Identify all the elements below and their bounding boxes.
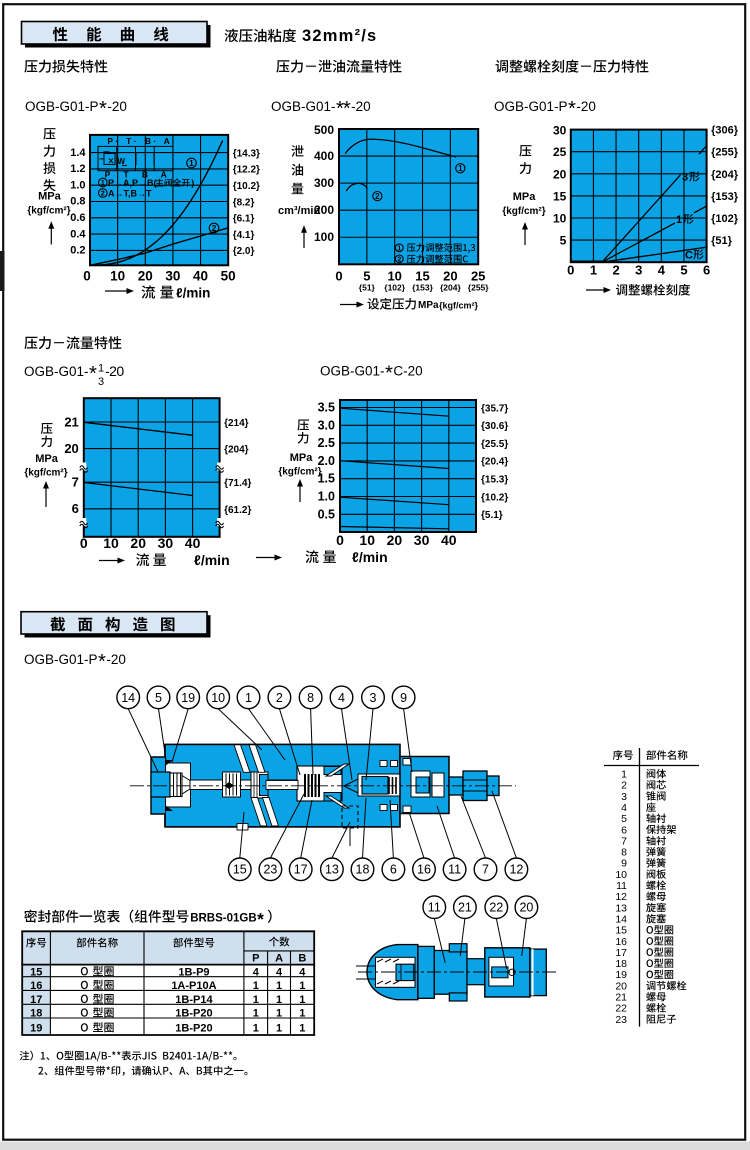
svg-text:MPa: MPa [418, 300, 439, 311]
svg-text:0: 0 [80, 535, 88, 551]
svg-text:{10.2}: {10.2} [481, 492, 508, 503]
svg-text:1: 1 [245, 691, 252, 705]
svg-text:OGB-G01-P: OGB-G01-P [25, 99, 99, 114]
svg-text:{255}: {255} [711, 147, 739, 159]
svg-text:15: 15 [233, 863, 247, 877]
svg-text:32mm²/s: 32mm²/s [302, 27, 377, 45]
svg-text:{2.0}: {2.0} [233, 246, 255, 257]
svg-text:1: 1 [101, 178, 105, 187]
svg-text:A→T,B→T: A→T,B→T [108, 189, 152, 199]
svg-text:18: 18 [30, 1008, 42, 1020]
svg-text:1.4: 1.4 [70, 147, 86, 159]
svg-text:6: 6 [703, 263, 710, 278]
svg-text:{12.2}: {12.2} [233, 165, 260, 176]
svg-text:100: 100 [314, 230, 334, 244]
svg-text:{255}: {255} [468, 283, 489, 293]
svg-text:C-20: C-20 [393, 364, 422, 379]
svg-text:A ·: A · [164, 136, 175, 146]
svg-text:{102}: {102} [711, 213, 739, 225]
svg-text:0: 0 [567, 263, 574, 278]
svg-text:20: 20 [387, 532, 403, 548]
svg-text:{6.1}: {6.1} [233, 214, 255, 225]
svg-text:1: 1 [253, 994, 259, 1006]
svg-text:MPa: MPa [513, 191, 537, 203]
svg-text:0.8: 0.8 [70, 196, 85, 208]
svg-text:6: 6 [390, 863, 397, 877]
svg-text:{kgf/cm²}: {kgf/cm²} [439, 301, 479, 311]
svg-text:21: 21 [458, 901, 472, 915]
svg-text:23: 23 [615, 1014, 627, 1026]
svg-text:{35.7}: {35.7} [481, 403, 508, 414]
svg-text:*: * [257, 909, 264, 929]
svg-text:20: 20 [519, 901, 533, 915]
svg-text:10: 10 [359, 532, 375, 548]
svg-text:1: 1 [276, 1023, 282, 1035]
svg-text:13: 13 [325, 863, 339, 877]
svg-text:30: 30 [158, 535, 174, 551]
svg-text:10: 10 [110, 269, 125, 284]
svg-text:1: 1 [276, 994, 282, 1006]
svg-text:1: 1 [299, 1008, 305, 1020]
svg-text:1: 1 [299, 1023, 305, 1035]
svg-text:{30.6}: {30.6} [481, 421, 508, 432]
svg-text:1B-P9: 1B-P9 [178, 966, 209, 978]
svg-text:10: 10 [103, 535, 119, 551]
svg-text:OGB-G01-P: OGB-G01-P [24, 652, 98, 667]
svg-text:1: 1 [276, 980, 282, 992]
svg-text:30: 30 [414, 532, 430, 548]
svg-text:cm³/min: cm³/min [278, 205, 320, 217]
svg-text:*: * [568, 98, 576, 120]
svg-text:{102}: {102} [384, 283, 405, 293]
svg-text:1: 1 [253, 1008, 259, 1020]
svg-text:0: 0 [83, 269, 91, 284]
svg-text:6: 6 [72, 501, 79, 516]
svg-text:23: 23 [263, 863, 277, 877]
svg-text:1: 1 [676, 214, 682, 226]
svg-text:OGB-G01-: OGB-G01- [24, 364, 89, 379]
svg-text:1: 1 [299, 994, 305, 1006]
svg-text:MPa: MPa [290, 452, 314, 464]
svg-text:4: 4 [299, 966, 306, 978]
svg-text:30: 30 [165, 269, 180, 284]
svg-text:C: C [685, 250, 693, 262]
svg-text:10: 10 [211, 691, 225, 705]
svg-text:BRBS-01GB: BRBS-01GB [190, 913, 256, 925]
svg-text:7: 7 [482, 863, 489, 877]
svg-text:25: 25 [553, 145, 567, 159]
svg-text:-20: -20 [576, 99, 596, 114]
svg-text:20: 20 [138, 269, 153, 284]
svg-text:3: 3 [682, 172, 688, 184]
svg-text:1B-P14: 1B-P14 [175, 994, 213, 1006]
svg-text:**: ** [336, 98, 351, 120]
svg-text:P ·: P · [107, 136, 118, 146]
svg-text:15: 15 [415, 269, 429, 284]
svg-text:MPa: MPa [35, 453, 59, 465]
svg-text:16: 16 [30, 980, 42, 992]
svg-text:MPa: MPa [38, 191, 62, 203]
svg-text:1: 1 [189, 158, 194, 168]
svg-text:16: 16 [417, 863, 431, 877]
svg-text:1A-P10A: 1A-P10A [171, 980, 216, 992]
svg-text:4: 4 [276, 966, 283, 978]
svg-text:40: 40 [193, 269, 208, 284]
svg-text:{5.1}: {5.1} [481, 510, 503, 521]
svg-text:1: 1 [98, 363, 104, 375]
svg-text:{306}: {306} [711, 125, 739, 137]
svg-text:{kgf/cm²}: {kgf/cm²} [502, 206, 545, 217]
svg-text:{25.5}: {25.5} [481, 439, 508, 450]
svg-text:OGB-G01-: OGB-G01- [271, 99, 336, 114]
svg-text:0.4: 0.4 [70, 228, 86, 240]
svg-text:20: 20 [553, 167, 567, 181]
svg-text:4: 4 [253, 966, 260, 978]
svg-text:{61.2}: {61.2} [224, 505, 251, 516]
svg-text:B: B [298, 953, 306, 965]
svg-text:-20: -20 [105, 363, 124, 379]
svg-text:15: 15 [30, 966, 42, 978]
svg-text:ℓ/min: ℓ/min [352, 549, 388, 565]
svg-text:ℓ/min: ℓ/min [194, 552, 230, 568]
svg-text:14: 14 [121, 691, 135, 705]
svg-text:8: 8 [307, 691, 314, 705]
svg-text:17: 17 [294, 863, 308, 877]
svg-text:{153}: {153} [711, 191, 739, 203]
svg-text:{15.3}: {15.3} [481, 475, 508, 486]
svg-text:{153}: {153} [412, 283, 433, 293]
svg-text:1: 1 [253, 980, 259, 992]
svg-text:P: P [252, 953, 259, 965]
svg-text:1.0: 1.0 [70, 179, 85, 191]
svg-text:1: 1 [458, 164, 463, 173]
svg-text:1: 1 [397, 245, 401, 252]
svg-text:{20.4}: {20.4} [481, 457, 508, 468]
svg-text:3.5: 3.5 [318, 401, 335, 415]
svg-text:2.5: 2.5 [318, 436, 335, 450]
svg-text:{51}: {51} [359, 283, 376, 293]
svg-text:18: 18 [356, 863, 370, 877]
svg-text:0: 0 [335, 269, 342, 284]
svg-text:{kgf/cm²}: {kgf/cm²} [278, 467, 321, 478]
svg-text:22: 22 [489, 901, 503, 915]
svg-text:3.0: 3.0 [318, 418, 335, 432]
svg-text:50: 50 [221, 269, 236, 284]
svg-text:3: 3 [635, 263, 642, 278]
svg-text:10: 10 [387, 269, 401, 284]
svg-text:1B-P20: 1B-P20 [175, 1023, 212, 1035]
svg-text:{204}: {204} [224, 445, 249, 456]
svg-text:9: 9 [400, 691, 407, 705]
svg-text:1: 1 [253, 1023, 259, 1035]
svg-text:{14.3}: {14.3} [233, 148, 260, 159]
svg-text:{kgf/cm²}: {kgf/cm²} [27, 206, 70, 217]
svg-text:2: 2 [101, 189, 105, 198]
svg-text:20: 20 [64, 441, 78, 456]
svg-text:21: 21 [64, 414, 78, 429]
svg-text:ℓ/min: ℓ/min [176, 286, 210, 301]
svg-text:500: 500 [314, 123, 334, 137]
svg-text:P→A,P→B(: P→A,P→B( [108, 178, 157, 188]
svg-text:12: 12 [509, 863, 523, 877]
svg-text:20: 20 [443, 269, 457, 284]
svg-text:*: * [385, 363, 393, 385]
svg-text:40: 40 [185, 535, 201, 551]
svg-text:*: * [89, 363, 97, 385]
svg-text:300: 300 [314, 176, 334, 190]
svg-text:*: * [99, 98, 107, 120]
svg-text:3: 3 [98, 376, 104, 388]
svg-text:0.6: 0.6 [70, 212, 85, 224]
svg-text:11: 11 [448, 863, 461, 877]
svg-text:{204}: {204} [711, 169, 739, 181]
svg-text:OGB-G01-: OGB-G01- [320, 364, 385, 379]
svg-text:1B-P20: 1B-P20 [175, 1008, 212, 1020]
svg-text:B ·: B · [145, 136, 156, 146]
svg-text:15: 15 [553, 189, 567, 203]
svg-text:0.5: 0.5 [318, 507, 335, 521]
svg-text:1.0: 1.0 [318, 490, 335, 504]
svg-text:OGB-G01-P: OGB-G01-P [494, 99, 568, 114]
svg-text:4: 4 [338, 691, 345, 705]
svg-text:A: A [275, 953, 283, 965]
svg-text:5: 5 [680, 263, 687, 278]
svg-text:{10.2}: {10.2} [233, 181, 260, 192]
svg-text:{204}: {204} [440, 283, 461, 293]
svg-text:{214}: {214} [224, 418, 249, 429]
svg-text:30: 30 [553, 124, 567, 138]
svg-text:5: 5 [560, 234, 567, 248]
svg-text:{4.1}: {4.1} [233, 230, 255, 241]
svg-text:19: 19 [181, 691, 195, 705]
svg-text:{51}: {51} [711, 235, 733, 247]
svg-text:0.2: 0.2 [70, 245, 85, 257]
svg-text:2: 2 [397, 256, 401, 263]
svg-text:400: 400 [314, 149, 334, 163]
svg-text:19: 19 [30, 1023, 42, 1035]
svg-text:2: 2 [276, 691, 283, 705]
svg-text:17: 17 [30, 994, 42, 1006]
svg-text:4: 4 [658, 263, 666, 278]
svg-text:10: 10 [553, 212, 567, 226]
svg-text:1: 1 [276, 1008, 282, 1020]
svg-text:20: 20 [130, 535, 146, 551]
svg-text:1: 1 [590, 263, 597, 278]
svg-text:-20: -20 [106, 652, 126, 667]
svg-text:11: 11 [428, 901, 441, 915]
svg-text:1: 1 [299, 980, 305, 992]
svg-text:): ) [191, 178, 194, 188]
svg-text:2: 2 [612, 263, 619, 278]
svg-text:3: 3 [370, 691, 377, 705]
svg-text:{kgf/cm²}: {kgf/cm²} [24, 468, 67, 479]
svg-text:40: 40 [441, 532, 457, 548]
svg-text:*: * [98, 651, 106, 673]
svg-text:2: 2 [375, 192, 380, 201]
svg-text:0: 0 [336, 532, 344, 548]
svg-text:W: W [118, 157, 126, 166]
svg-text:25: 25 [471, 269, 485, 284]
svg-text:-20: -20 [351, 99, 371, 114]
svg-text:1.2: 1.2 [70, 163, 85, 175]
svg-text:{8.2}: {8.2} [233, 197, 255, 208]
svg-text:5: 5 [155, 691, 162, 705]
svg-text:-20: -20 [107, 99, 127, 114]
svg-text:7: 7 [72, 475, 79, 490]
svg-text:5: 5 [363, 269, 370, 284]
svg-text:{71.4}: {71.4} [224, 478, 251, 489]
svg-text:A: A [161, 170, 167, 180]
svg-text:T ·: T · [126, 136, 136, 146]
svg-text:2: 2 [212, 223, 217, 233]
